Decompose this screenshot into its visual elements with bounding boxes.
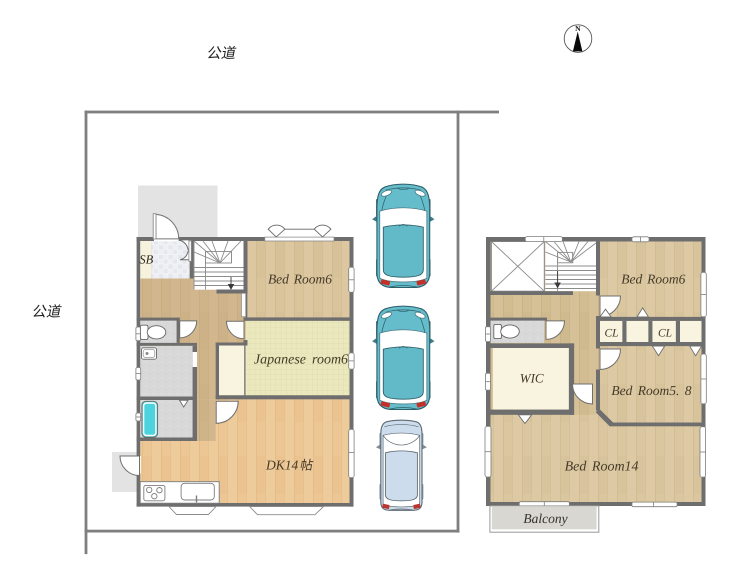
svg-text:公道: 公道	[205, 45, 237, 62]
svg-text:Bed Room5. 8: Bed Room5. 8	[611, 383, 691, 398]
svg-text:Bed Room6: Bed Room6	[621, 272, 685, 287]
svg-text:CL: CL	[658, 327, 672, 339]
svg-text:Bed Room6: Bed Room6	[268, 272, 332, 287]
svg-text:公道: 公道	[31, 304, 63, 321]
svg-text:Japanese room6: Japanese room6	[254, 352, 348, 367]
svg-text:WIC: WIC	[520, 371, 544, 386]
svg-text:DK14: DK14	[265, 458, 299, 473]
svg-text:N: N	[575, 24, 581, 33]
svg-text:SB: SB	[139, 253, 153, 267]
svg-text:CL: CL	[604, 327, 618, 339]
svg-text:Bed Room14: Bed Room14	[565, 459, 639, 474]
svg-text:Balcony: Balcony	[523, 511, 567, 526]
